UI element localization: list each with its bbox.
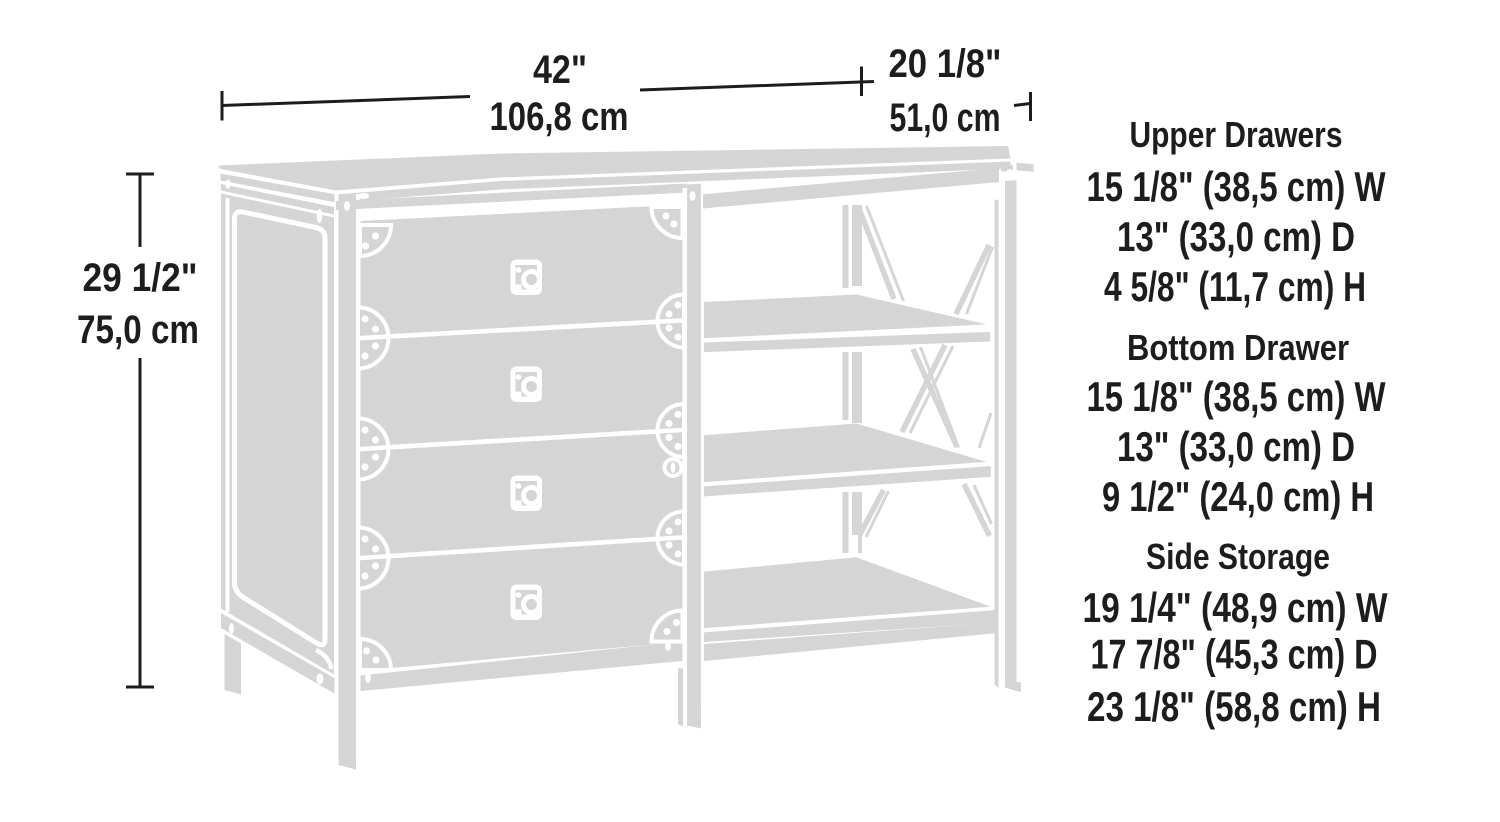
- svg-text:42": 42": [533, 48, 587, 92]
- svg-text:15 1/8" (38,5 cm) W: 15 1/8" (38,5 cm) W: [1087, 373, 1386, 420]
- svg-text:20 1/8": 20 1/8": [889, 42, 1002, 86]
- svg-text:Bottom Drawer: Bottom Drawer: [1127, 327, 1349, 368]
- svg-text:19 1/4" (48,9 cm) W: 19 1/4" (48,9 cm) W: [1083, 584, 1388, 631]
- svg-text:29 1/2": 29 1/2": [83, 256, 198, 300]
- svg-text:106,8 cm: 106,8 cm: [490, 95, 629, 139]
- svg-text:17 7/8" (45,3 cm) D: 17 7/8" (45,3 cm) D: [1091, 631, 1378, 678]
- svg-text:13" (33,0 cm) D: 13" (33,0 cm) D: [1117, 213, 1355, 260]
- svg-text:Side Storage: Side Storage: [1146, 536, 1330, 577]
- svg-text:75,0 cm: 75,0 cm: [77, 308, 199, 352]
- svg-text:15 1/8" (38,5 cm) W: 15 1/8" (38,5 cm) W: [1087, 163, 1386, 210]
- svg-text:9 1/2" (24,0 cm) H: 9 1/2" (24,0 cm) H: [1102, 473, 1374, 520]
- svg-text:4 5/8" (11,7 cm) H: 4 5/8" (11,7 cm) H: [1104, 263, 1366, 310]
- svg-text:23 1/8" (58,8 cm) H: 23 1/8" (58,8 cm) H: [1087, 683, 1381, 730]
- svg-text:13" (33,0 cm) D: 13" (33,0 cm) D: [1117, 423, 1355, 470]
- svg-text:Upper Drawers: Upper Drawers: [1130, 114, 1343, 155]
- svg-text:51,0 cm: 51,0 cm: [890, 96, 1001, 140]
